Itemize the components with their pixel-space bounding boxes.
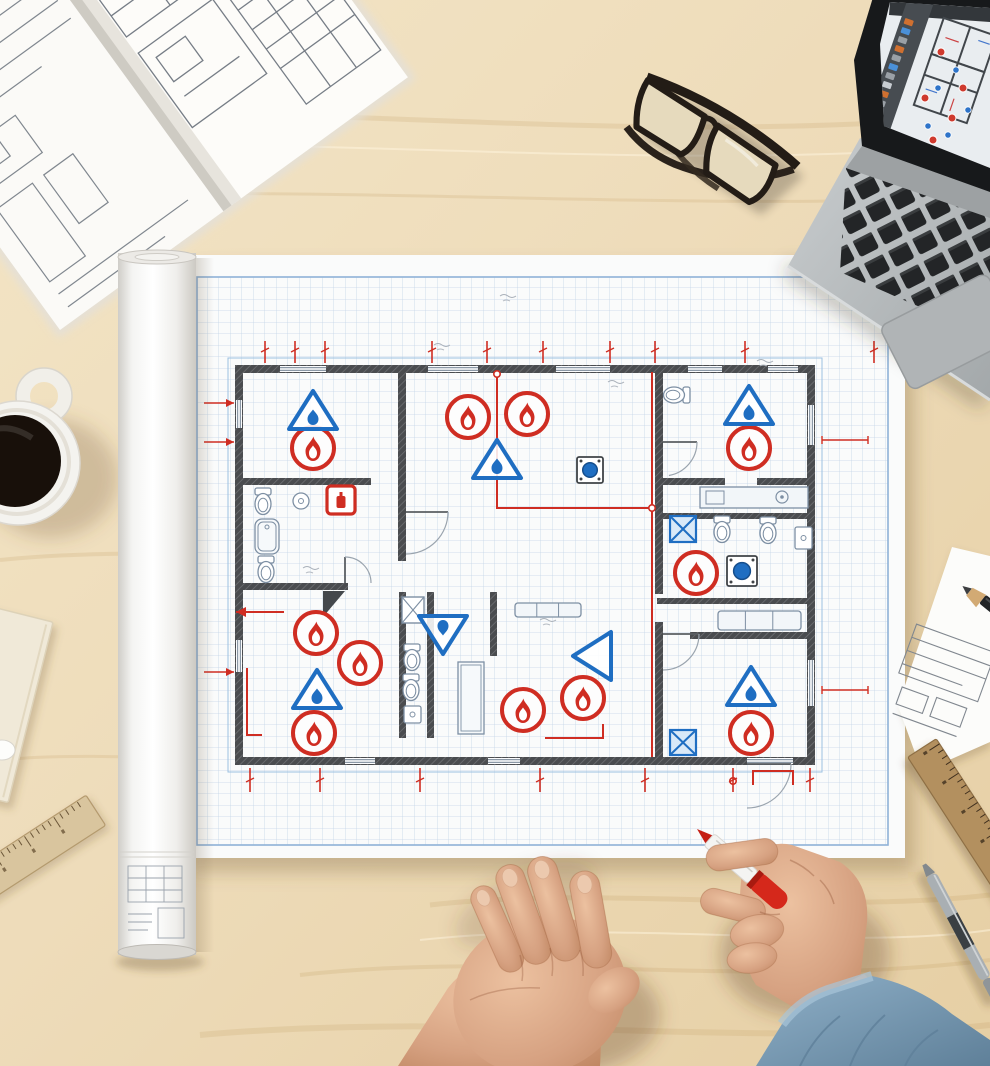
- wall: [398, 365, 406, 561]
- cad-red-marker: [937, 48, 945, 56]
- window: [488, 758, 520, 764]
- table-fixture: [458, 662, 484, 734]
- stove-knob: [730, 581, 733, 584]
- cad-blue-marker: [925, 123, 931, 129]
- wall: [235, 757, 815, 765]
- window: [808, 405, 814, 445]
- window: [345, 758, 375, 764]
- window: [428, 366, 478, 372]
- toilet-fixture: [714, 516, 730, 543]
- stove-knob: [752, 559, 755, 562]
- stove-knob: [580, 478, 583, 481]
- counter-sink-drain: [780, 495, 784, 499]
- scene-canvas: [0, 0, 990, 1066]
- toilet-fixture: [403, 674, 419, 701]
- toilet-fixture: [664, 387, 691, 403]
- extinguisher-nozzle: [340, 492, 343, 496]
- wall: [757, 478, 815, 485]
- cad-blue-marker: [965, 107, 971, 113]
- fire-alarm-symbol: [447, 396, 489, 438]
- toilet-fixture: [404, 644, 420, 671]
- wall: [663, 478, 725, 485]
- stove-knob: [598, 478, 601, 481]
- window: [280, 366, 326, 372]
- wall: [655, 622, 663, 757]
- stove-burner: [583, 463, 598, 478]
- wall: [690, 632, 815, 639]
- window: [556, 366, 610, 372]
- fire-alarm-symbol: [562, 677, 604, 719]
- sofa-fixture: [718, 611, 801, 630]
- cad-red-marker: [948, 114, 956, 122]
- fire-alarm-symbol: [506, 393, 548, 435]
- cad-blue-marker: [945, 132, 951, 138]
- fire-alarm-symbol: [292, 427, 334, 469]
- tube-bottom-cap: [118, 945, 196, 960]
- sink-fixture: [293, 493, 309, 509]
- tube-body: [118, 253, 196, 955]
- cad-blue-marker: [953, 67, 959, 73]
- toilet-fixture: [255, 488, 271, 515]
- red-wiring-node: [649, 505, 655, 511]
- tube-paper-spiral: [135, 254, 179, 261]
- wall: [427, 592, 434, 738]
- window: [808, 660, 814, 706]
- window: [768, 366, 798, 372]
- wall: [655, 480, 663, 594]
- wall: [235, 478, 371, 485]
- wall: [655, 365, 663, 480]
- cad-red-marker: [921, 94, 929, 102]
- counter-fixture: [700, 487, 808, 508]
- toilet-fixture: [760, 517, 776, 544]
- stove-knob: [730, 559, 733, 562]
- stove-knob: [580, 460, 583, 463]
- wall: [490, 592, 497, 656]
- fire-alarm-symbol: [728, 427, 770, 469]
- window: [236, 400, 242, 428]
- toilet-fixture: [258, 556, 274, 583]
- window: [688, 366, 722, 372]
- red-wiring-node: [494, 371, 500, 377]
- extinguisher-box-symbol: [327, 486, 355, 514]
- cad-blue-marker: [935, 85, 941, 91]
- fire-alarm-symbol: [339, 642, 381, 684]
- extinguisher-icon: [337, 496, 346, 508]
- fire-alarm-symbol: [730, 712, 772, 754]
- sink-fixture: [795, 527, 812, 549]
- sofa-fixture: [515, 603, 581, 617]
- cad-red-marker: [929, 136, 937, 144]
- fire-alarm-symbol: [295, 612, 337, 654]
- cad-red-marker: [959, 84, 967, 92]
- sink-fixture: [404, 706, 421, 723]
- fire-safety-floor-plan-sheet: [185, 255, 914, 872]
- fire-alarm-symbol: [502, 689, 544, 731]
- fire-alarm-symbol: [675, 552, 717, 594]
- stove-burner: [734, 563, 751, 580]
- fire-alarm-symbol: [293, 712, 335, 754]
- stove-knob: [752, 581, 755, 584]
- desk-scene: [0, 0, 990, 1066]
- window: [236, 640, 242, 672]
- tube-shadow: [196, 258, 214, 952]
- rolled-blueprint-tube: [116, 250, 214, 971]
- stove-knob: [598, 460, 601, 463]
- wall: [235, 583, 348, 590]
- wall: [657, 598, 815, 604]
